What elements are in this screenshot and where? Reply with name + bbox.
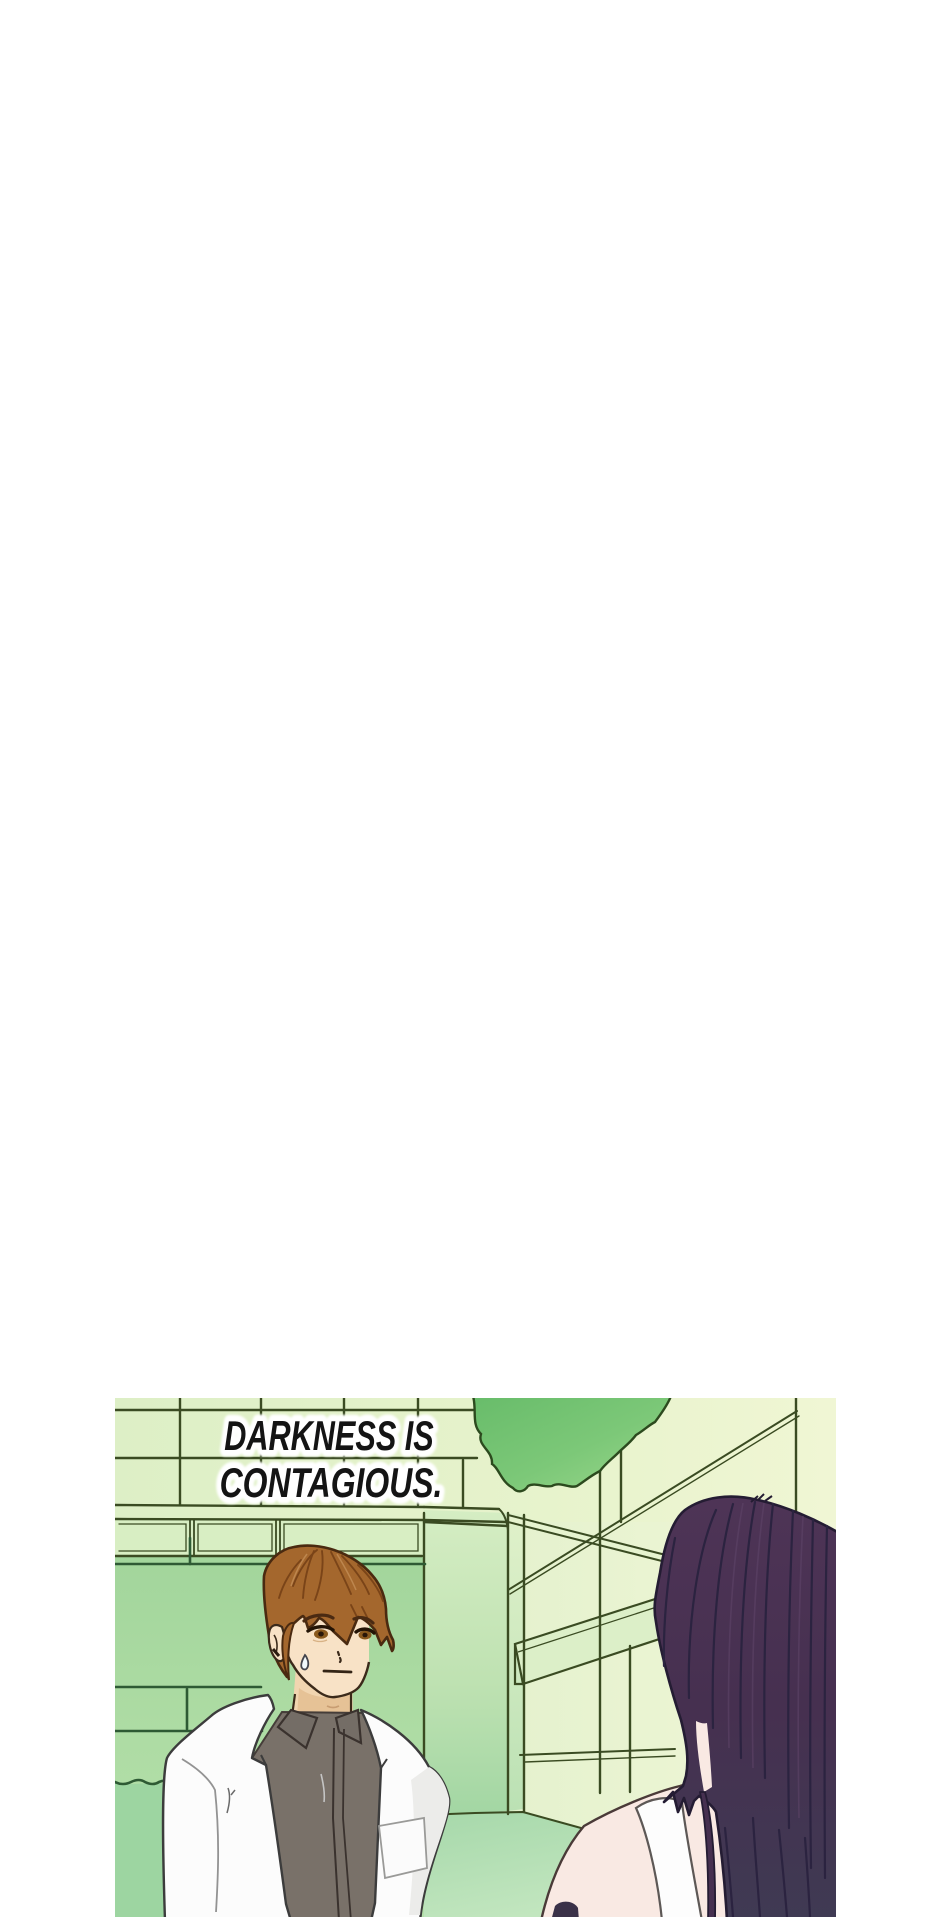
svg-text:CONTAGIOUS.: CONTAGIOUS. [220,1459,443,1506]
svg-text:DARKNESS IS: DARKNESS IS [224,1412,434,1459]
